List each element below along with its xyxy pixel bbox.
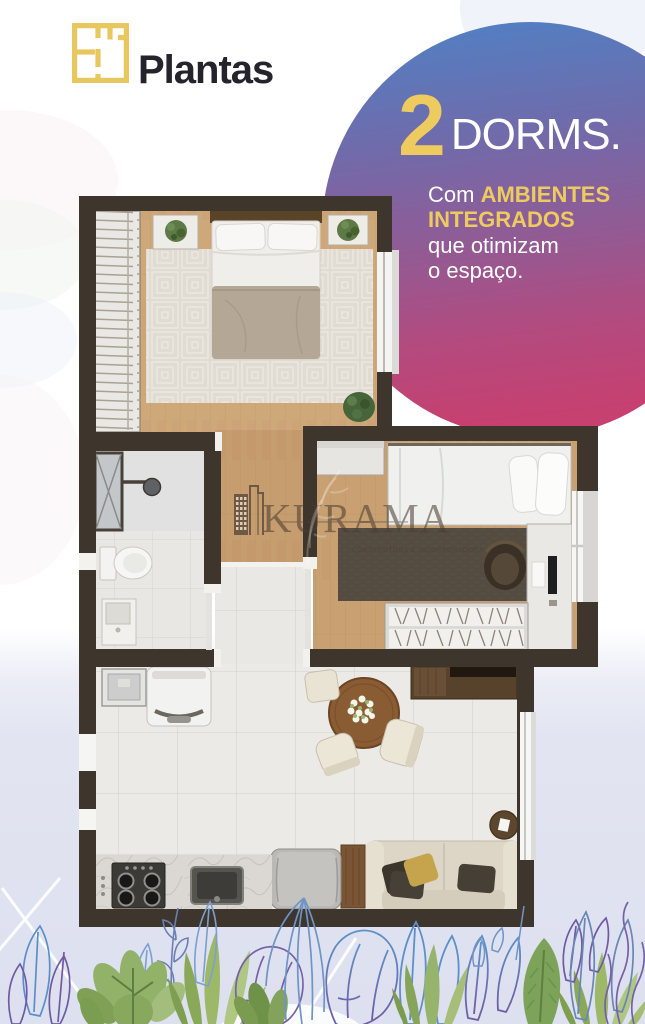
svg-text:CONSTRUTORA E INCORPORADORA: CONSTRUTORA E INCORPORADORA [352,547,484,554]
svg-text:KURAMA: KURAMA [262,495,450,541]
